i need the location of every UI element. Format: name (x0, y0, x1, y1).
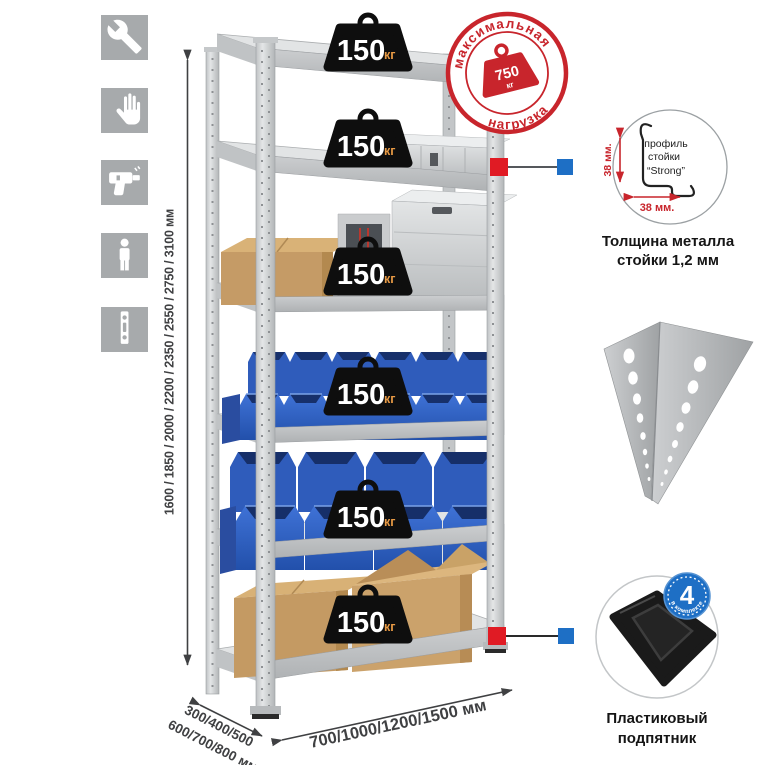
shelf-front-beam (257, 295, 504, 312)
profile-strip-tile (101, 307, 148, 352)
assembly-tile (101, 15, 148, 60)
weight-unit: кг (384, 515, 395, 529)
weight-value: 150 (337, 607, 385, 639)
product-infographic: 1600 / 1850 / 2000 / 2200 / 2350 / 2550 … (0, 0, 765, 765)
bin (290, 352, 332, 396)
rack-post-front-right (483, 59, 508, 653)
bin-side-panel (222, 394, 240, 444)
weight-unit: кг (384, 392, 395, 406)
profile-caption-line2: стойки 1,2 мм (617, 252, 719, 269)
profile-label-line2: стойки (648, 151, 680, 163)
profile-label-line1: профиль (644, 138, 688, 150)
connector-red-marker (488, 627, 506, 645)
foot-caption-line1: Пластиковый (606, 710, 707, 727)
post-foot-pad (252, 714, 279, 719)
post-blade-left (604, 322, 660, 500)
foot-callout-connector (488, 627, 574, 645)
connector-blue-marker (557, 159, 573, 175)
height-dimension-label: 1600 / 1850 / 2000 / 2200 / 2350 / 2550 … (163, 209, 177, 515)
connector-blue-marker (558, 628, 574, 644)
weight-unit: кг (384, 620, 395, 634)
max-load-stamp: 750 кг максимальная нагрузка (435, 1, 578, 144)
foot-callout: 4 в комплекте Пластиковый подпятник (596, 573, 718, 747)
corner-post-image (604, 322, 753, 504)
height-dimension: 1600 / 1850 / 2000 / 2200 / 2350 / 2550 … (163, 60, 188, 665)
quantity-badge: 4 в комплекте (664, 573, 710, 619)
bin-side-panel (220, 506, 236, 574)
width-dimension-label: 700/1000/1200/1500 мм (308, 696, 488, 752)
profile-label-line3: “Strong” (647, 165, 685, 177)
person-tile (101, 233, 148, 278)
case-handle (432, 207, 452, 214)
weight-value: 150 (337, 502, 385, 534)
width-dimension: 700/1000/1200/1500 мм (282, 690, 512, 752)
profile-dim-horizontal-label: 38 мм. (640, 202, 675, 214)
depth-dimension: 300/400/500 600/700/800 мм (166, 702, 262, 765)
profile-dim-vertical-label: 38 мм. (602, 143, 614, 176)
bin (416, 352, 458, 396)
sidebar-icons (101, 15, 148, 352)
post-foot-pad (485, 649, 506, 653)
case-latch (430, 153, 438, 166)
profile-caption-line1: Толщина металла (602, 233, 735, 250)
drill-tile (101, 160, 148, 205)
weight-unit: кг (384, 48, 395, 62)
connector-red-marker (490, 158, 508, 176)
profile-strip-icon (121, 311, 129, 344)
gloves-tile (101, 88, 148, 133)
weight-value: 150 (337, 259, 385, 291)
weight-value: 150 (337, 379, 385, 411)
badge-value: 4 (680, 580, 695, 610)
weight-unit: кг (384, 144, 395, 158)
weight-badge-2: 150 кг (328, 111, 408, 163)
post-foot (250, 706, 281, 715)
profile-callout-connector (490, 158, 573, 176)
weight-unit: кг (384, 272, 395, 286)
post-blade-right (651, 322, 753, 504)
profile-callout: 38 мм. 38 мм. профиль стойки “Strong” То… (602, 110, 735, 269)
weight-value: 150 (337, 131, 385, 163)
infographic-canvas: 1600 / 1850 / 2000 / 2200 / 2350 / 2550 … (0, 0, 765, 765)
weight-value: 150 (337, 35, 385, 67)
weight-badge-1: 150 кг (328, 15, 408, 67)
foot-caption-line2: подпятник (618, 730, 697, 747)
post-cap (253, 37, 278, 43)
